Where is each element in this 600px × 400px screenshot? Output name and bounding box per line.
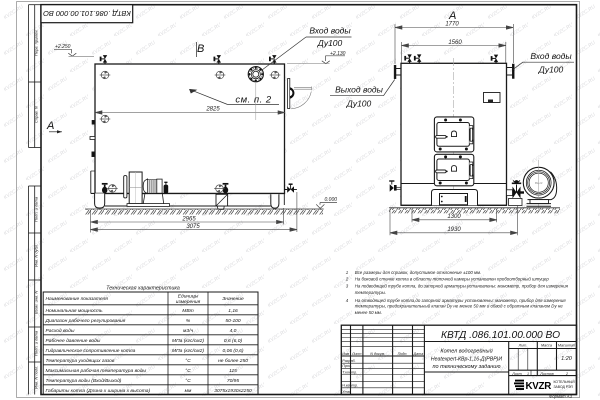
svg-text:2825: 2825 (205, 107, 220, 113)
svg-text:Лит.: Лит. (518, 344, 528, 348)
svg-text:+2.250: +2.250 (55, 44, 71, 50)
svg-text:0,6 (6,0): 0,6 (6,0) (224, 338, 243, 344)
svg-text:Рабочее давление воды: Рабочее давление воды (46, 338, 101, 344)
svg-text:не более 250: не более 250 (218, 358, 248, 364)
svg-text:КВТД .086.101.00.000 ВО: КВТД .086.101.00.000 ВО (441, 330, 560, 341)
svg-text:°С: °С (185, 358, 191, 364)
svg-text:1:20: 1:20 (561, 356, 573, 362)
svg-text:Дата: Дата (413, 352, 424, 356)
svg-text:Н.контр.: Н.контр. (342, 384, 358, 388)
svg-text:Все размеры для справок, допус: Все размеры для справок, допустимое откл… (355, 270, 482, 275)
svg-text:Подп. и дата: Подп. и дата (34, 196, 39, 222)
svg-text:Температура воды (Вход/Выход): Температура воды (Вход/Выход) (46, 378, 122, 384)
svg-text:Расход воды: Расход воды (46, 328, 75, 334)
svg-text:1,16: 1,16 (228, 308, 238, 314)
svg-text:Единицы: Единицы (178, 294, 199, 300)
svg-text:Диапазон рабочего регулировани: Диапазон рабочего регулирования (45, 318, 126, 324)
svg-text:Heatexpert-КВр-1,16-Д(РВР)И: Heatexpert-КВр-1,16-Д(РВР)И (431, 356, 503, 362)
svg-text:температуры.: температуры. (355, 290, 386, 295)
svg-text:температуры, предохранительный: температуры, предохранительный клапан Dу… (355, 304, 564, 309)
svg-text:+2.130: +2.130 (330, 51, 346, 57)
svg-text:1300: 1300 (447, 214, 461, 220)
svg-text:Перв. примен.: Перв. примен. (34, 29, 39, 56)
svg-text:На подводящей трубе котла, д: На подводящей трубе котла, до запорной а… (355, 284, 569, 289)
svg-text:Разраб.: Разраб. (342, 359, 355, 363)
svg-text:1: 1 (527, 372, 529, 376)
svg-text:Листов: Листов (539, 372, 554, 376)
svg-text:50-100: 50-100 (225, 318, 241, 324)
svg-text:Температура уходящих газов: Температура уходящих газов (46, 358, 115, 364)
svg-text:Инв. N подл.: Инв. N подл. (34, 366, 39, 389)
svg-text:2965: 2965 (181, 216, 196, 222)
svg-text:КВТД .086.101.00.000 ВО: КВТД .086.101.00.000 ВО (43, 9, 131, 18)
svg-text:3075х1930х2250: 3075х1930х2250 (214, 388, 252, 394)
svg-text:Подп.: Подп. (398, 352, 408, 356)
svg-text:На отводящей трубе котла,до за: На отводящей трубе котла,до запорной арм… (355, 298, 567, 303)
svg-text:МПа (кгс/см2): МПа (кгс/см2) (172, 348, 204, 354)
svg-text:ЗАВОД РЭП: ЗАВОД РЭП (554, 385, 574, 389)
svg-text:1560: 1560 (448, 40, 462, 46)
svg-text:Котел водогрейный: Котел водогрейный (440, 348, 492, 355)
svg-text:Ду100: Ду100 (538, 65, 564, 75)
svg-text:Изм: Изм (342, 352, 349, 356)
svg-text:Вход воды: Вход воды (309, 26, 351, 36)
svg-text:А: А (448, 10, 456, 22)
svg-text:2: 2 (345, 276, 349, 281)
svg-text:менее 50 мм.: менее 50 мм. (355, 310, 382, 315)
svg-text:Пров.: Пров. (342, 364, 352, 368)
svg-text:%: % (186, 318, 191, 324)
svg-text:KVZR: KVZR (526, 381, 552, 392)
svg-text:Инв. N дубл.: Инв. N дубл. (34, 244, 39, 267)
svg-text:4,0: 4,0 (230, 328, 237, 334)
svg-text:Взам. инв. N: Взам. инв. N (34, 291, 39, 314)
svg-text:Максимальная рабочая температу: Максимальная рабочая температура воды (46, 368, 147, 374)
svg-text:Вход воды: Вход воды (530, 51, 572, 61)
svg-text:1770: 1770 (445, 22, 459, 28)
svg-text:Т.контр.: Т.контр. (342, 370, 357, 374)
svg-text:по техническому заданию: по техническому заданию (433, 364, 501, 370)
svg-text:Утв.: Утв. (342, 390, 350, 394)
svg-text:Значение: Значение (222, 296, 244, 302)
svg-text:А: А (46, 120, 54, 132)
svg-text:70/95: 70/95 (227, 378, 240, 384)
svg-text:Справ. N: Справ. N (34, 106, 39, 123)
svg-text:°С: °С (185, 368, 191, 374)
svg-text:КОТЕЛЬНЫЙ: КОТЕЛЬНЫЙ (554, 380, 576, 384)
svg-text:Подп. и дата: Подп. и дата (34, 330, 39, 356)
svg-text:Масштаб: Масштаб (558, 344, 576, 348)
svg-text:Ду100: Ду100 (317, 38, 343, 48)
svg-text:Габариты котла (Длина х ширина: Габариты котла (Длина х ширина х высота) (46, 388, 151, 394)
svg-text:Гидравлическое сопротивление к: Гидравлическое сопротивление котла (46, 348, 136, 354)
svg-text:Масса: Масса (541, 344, 552, 348)
svg-text:МПа (кгс/см2): МПа (кгс/см2) (172, 338, 204, 344)
svg-text:Лист: Лист (511, 372, 522, 376)
svg-text:В: В (197, 43, 204, 55)
svg-text:На боковой стенке котла в обла: На боковой стенке котла в области топочн… (355, 276, 550, 281)
svg-text:Ду100: Ду100 (346, 99, 372, 109)
svg-text:°С: °С (185, 378, 191, 384)
svg-text:ВЦ14: ВЦ14 (535, 181, 543, 185)
svg-text:2: 2 (565, 372, 568, 376)
svg-text:115: 115 (229, 368, 237, 374)
svg-text:N докум.: N докум. (370, 352, 385, 356)
svg-text:Техническая характеристика: Техническая характеристика (106, 286, 180, 292)
svg-text:0.000: 0.000 (325, 197, 338, 203)
svg-text:Номинальная мощность: Номинальная мощность (46, 308, 104, 314)
svg-text:мм: мм (185, 389, 192, 394)
svg-text:Выход воды: Выход воды (335, 85, 384, 95)
svg-text:Наименование показателя: Наименование показателя (46, 296, 109, 302)
svg-text:3075: 3075 (186, 224, 200, 230)
svg-text:МВт: МВт (182, 308, 193, 314)
svg-text:Формат А3: Формат А3 (549, 394, 573, 399)
svg-text:1930: 1930 (447, 227, 461, 233)
svg-text:измерения: измерения (176, 300, 201, 305)
svg-text:Лист: Лист (351, 352, 362, 356)
svg-text:см. п. 2: см. п. 2 (235, 94, 272, 105)
svg-text:м3/ч: м3/ч (183, 328, 193, 334)
svg-text:0,06 (0,6): 0,06 (0,6) (223, 348, 244, 354)
